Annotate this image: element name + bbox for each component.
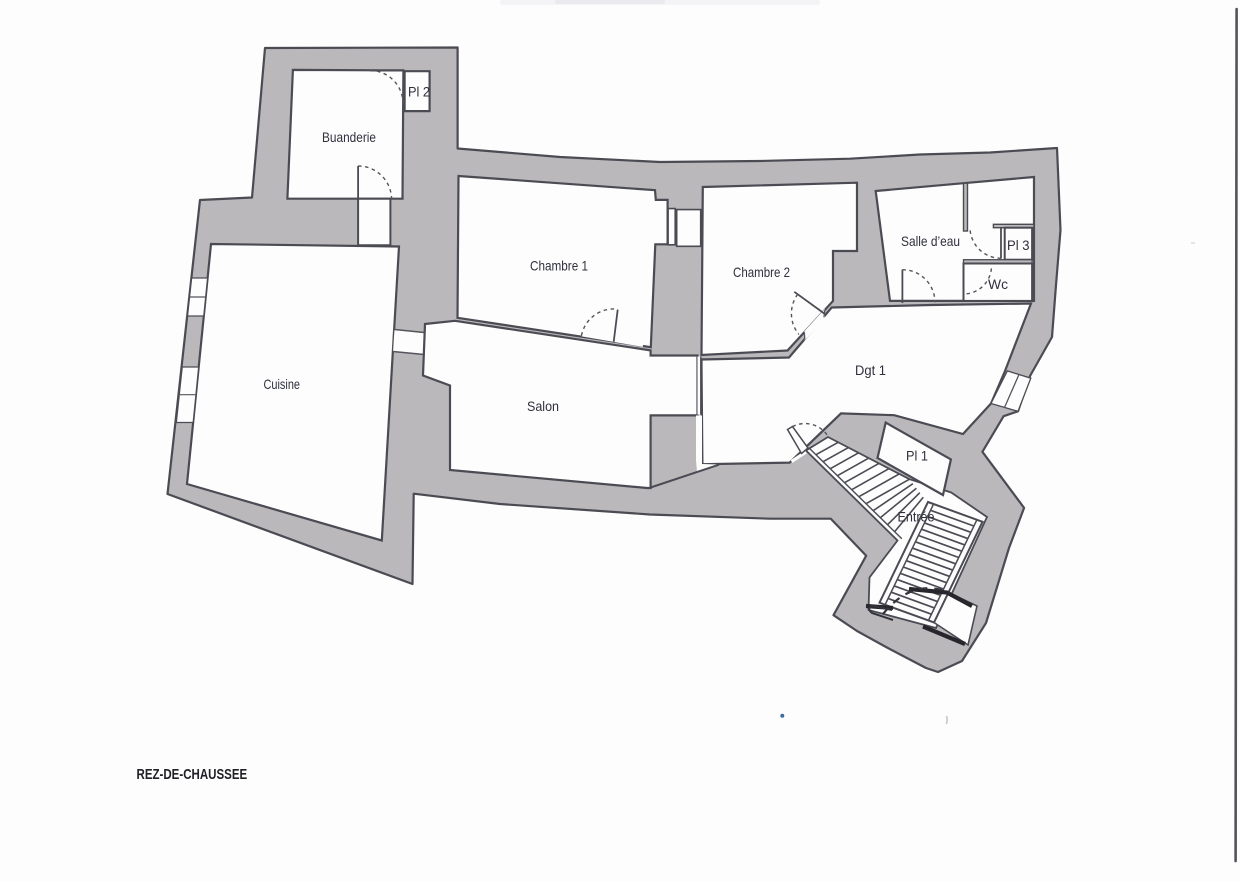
svg-text:Chambre 2: Chambre 2	[733, 264, 790, 280]
svg-text:Cuisine: Cuisine	[264, 376, 301, 392]
svg-text:Pl 2: Pl 2	[408, 84, 430, 100]
svg-text:Chambre 1: Chambre 1	[530, 258, 588, 274]
svg-text:REZ-DE-CHAUSSEE: REZ-DE-CHAUSSEE	[137, 766, 248, 783]
svg-text:Salle d’eau: Salle d’eau	[901, 233, 960, 249]
svg-text:Pl 1: Pl 1	[906, 448, 928, 464]
svg-text:Buanderie: Buanderie	[322, 129, 376, 145]
svg-text:Salon: Salon	[527, 398, 559, 414]
svg-text:Dgt 1: Dgt 1	[855, 362, 886, 378]
svg-text:Pl 3: Pl 3	[1007, 237, 1030, 253]
svg-text:Entrée: Entrée	[898, 509, 935, 525]
svg-text:Wc: Wc	[988, 276, 1008, 292]
